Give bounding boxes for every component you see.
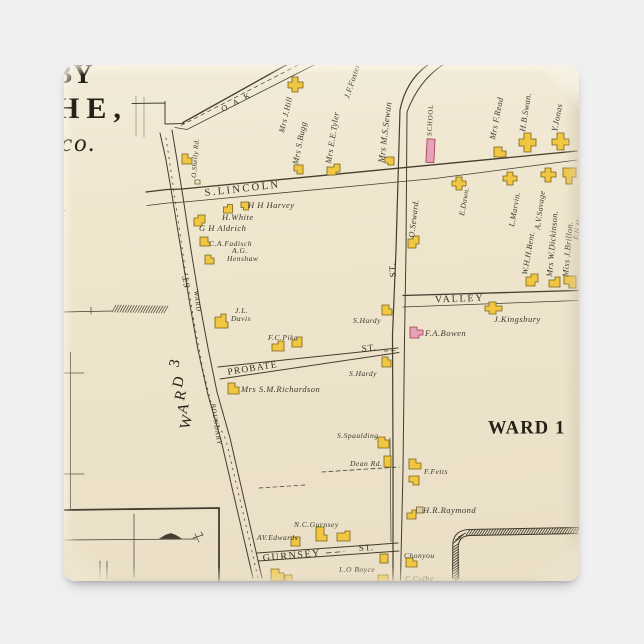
svg-text:WARD 3: WARD 3 — [165, 352, 199, 433]
svg-text:Dean Rd.: Dean Rd. — [349, 459, 382, 468]
svg-text:S.LINCOLN: S.LINCOLN — [204, 179, 281, 199]
svg-text:S.Spaulding: S.Spaulding — [337, 431, 379, 440]
svg-text:Y.Jonas: Y.Jonas — [549, 102, 564, 132]
svg-text:ST.: ST. — [359, 542, 375, 553]
svg-text:HE,: HE, — [64, 92, 128, 125]
svg-text:C.Colby: C.Colby — [405, 574, 433, 581]
svg-text:L.Marvin.: L.Marvin. — [507, 191, 522, 228]
svg-text:H H Harvey: H H Harvey — [247, 200, 295, 210]
svg-text:Mrs S.Bugg: Mrs S.Bugg — [290, 121, 308, 167]
svg-text:SCHOOL: SCHOOL — [427, 104, 436, 136]
svg-text:O.Shelly Rd.: O.Shelly Rd. — [190, 138, 201, 178]
svg-text:Mrs M.S.Sewan: Mrs M.S.Sewan — [376, 101, 394, 164]
svg-text:PROBATE: PROBATE — [227, 360, 279, 378]
svg-text:G H Aldrich: G H Aldrich — [199, 223, 246, 233]
svg-text:ST.: ST. — [361, 342, 377, 354]
svg-text:GURNSEY: GURNSEY — [262, 548, 321, 564]
svg-text:VALLEY: VALLEY — [435, 293, 485, 306]
svg-text:co.: co. — [64, 130, 97, 157]
svg-text:Mrs J.Hill: Mrs J.Hill — [277, 96, 294, 135]
svg-text:W.H.H.Bent.: W.H.H.Bent. — [520, 230, 537, 275]
svg-text:WARD 1: WARD 1 — [488, 419, 566, 439]
svg-text:ut.: ut. — [64, 205, 65, 213]
svg-text:BOUNDARY: BOUNDARY — [209, 403, 223, 446]
svg-text:N.C.Gurnsey: N.C.Gurnsey — [293, 520, 339, 529]
svg-text:BY: BY — [64, 65, 94, 89]
svg-text:Mrs F.Read: Mrs F.Read — [487, 96, 505, 141]
svg-text:A.V.Savage: A.V.Savage — [533, 190, 547, 231]
svg-text:H.B.Swan.: H.B.Swan. — [517, 92, 533, 133]
svg-text:H.White: H.White — [221, 212, 254, 222]
svg-text:Davis: Davis — [230, 314, 251, 323]
svg-text:E.Dawn.: E.Dawn. — [457, 187, 471, 218]
svg-text:S.Hardy: S.Hardy — [353, 316, 381, 325]
svg-text:S.Hardy: S.Hardy — [349, 369, 377, 378]
svg-text:Mrs S.M.Richardson: Mrs S.M.Richardson — [240, 384, 320, 394]
svg-text:WARD: WARD — [192, 290, 202, 312]
svg-text:Chonyou: Chonyou — [404, 551, 435, 560]
svg-text:Mrs W.Dickinson.: Mrs W.Dickinson. — [544, 210, 560, 278]
svg-text:ST.: ST. — [387, 262, 398, 278]
svg-text:J.F.Foster: J.F.Foster — [342, 65, 362, 100]
svg-text:Mrs E.E.Tyler: Mrs E.E.Tyler — [323, 111, 341, 166]
svg-text:L.O Boyce: L.O Boyce — [338, 565, 375, 574]
svg-text:ST.: ST. — [180, 272, 192, 289]
svg-text:J.Kingsbury: J.Kingsbury — [494, 314, 541, 324]
svg-text:F.C.Pike: F.C.Pike — [267, 333, 298, 342]
svg-text:Henshaw: Henshaw — [226, 254, 258, 263]
svg-text:AV.Edwards: AV.Edwards — [256, 533, 298, 542]
svg-text:F.H.Hammill: F.H.Hammill — [571, 197, 579, 242]
svg-text:F.Fetts: F.Fetts — [423, 467, 448, 476]
svg-text:F.A.Bowen: F.A.Bowen — [424, 328, 466, 338]
svg-text:H.R.Raymond: H.R.Raymond — [422, 505, 476, 515]
svg-text:O.Seward.: O.Seward. — [406, 199, 421, 239]
